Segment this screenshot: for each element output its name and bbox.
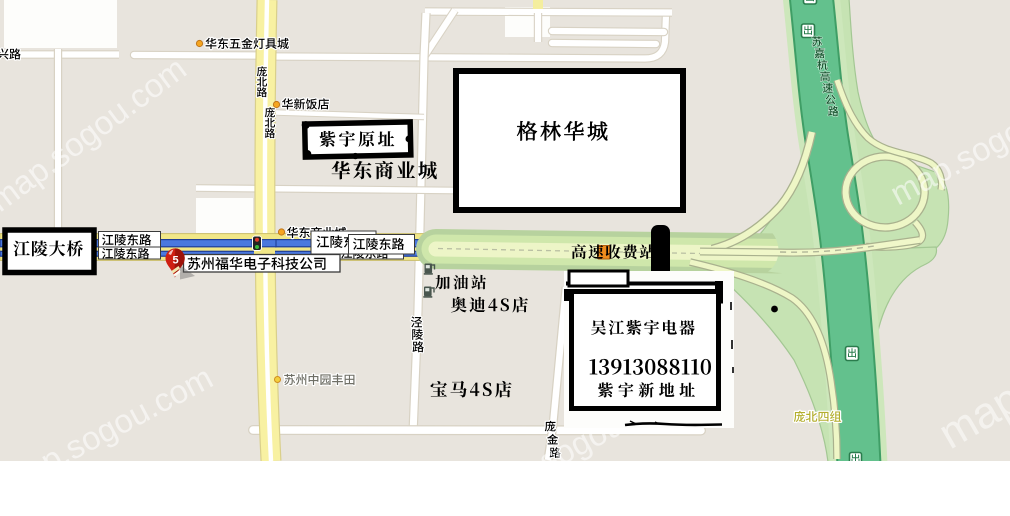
svg-text:5: 5: [172, 255, 178, 267]
